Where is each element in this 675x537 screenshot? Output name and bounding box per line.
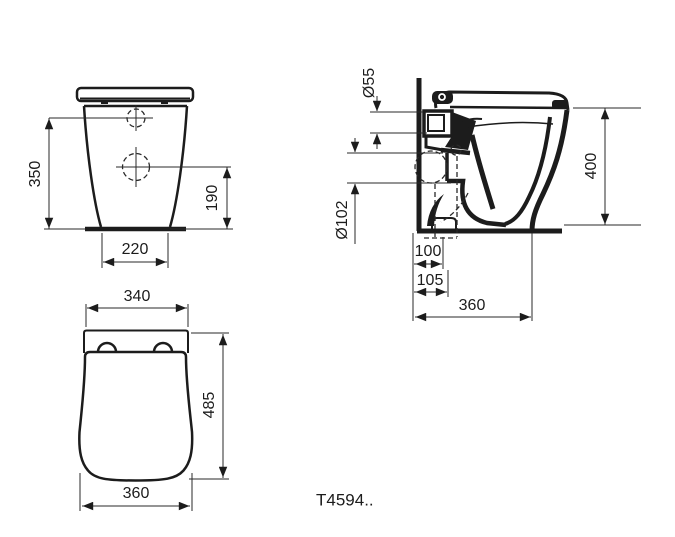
seat-plan-outline xyxy=(79,331,192,481)
base-width-label: 220 xyxy=(122,241,149,258)
outlet-offset-100-label: 100 xyxy=(415,243,442,260)
seat-outline xyxy=(79,352,192,481)
base-width-dimension: 220 xyxy=(102,233,168,268)
lower-hole-height-label: 190 xyxy=(204,185,221,212)
hinge-nub-left xyxy=(101,100,108,104)
drawing-svg: 350 190 220 xyxy=(0,0,675,537)
hinge-block xyxy=(432,91,453,104)
bowl-inner-front xyxy=(505,117,550,224)
hinge-right xyxy=(154,343,172,352)
front-height-label: 350 xyxy=(27,161,44,188)
back-width-dimension: 340 xyxy=(86,288,188,327)
hinge-left xyxy=(98,343,116,352)
back-step xyxy=(426,136,443,150)
water-line xyxy=(468,123,553,127)
front-width-label: 360 xyxy=(123,485,150,502)
inlet-diameter-label: Ø55 xyxy=(361,68,378,98)
hidden-outlet-lines xyxy=(415,145,468,238)
outlet-diameter-label: Ø102 xyxy=(334,200,351,239)
flush-rim-section xyxy=(445,112,476,150)
lower-hole-height-dimension: 190 xyxy=(116,167,233,229)
length-label: 485 xyxy=(201,392,218,419)
outlet-diameter-dimension: Ø102 xyxy=(334,138,451,244)
outlet-offset-105-label: 105 xyxy=(417,272,444,289)
lid-bumper xyxy=(552,100,567,109)
wc-side-outline xyxy=(424,91,568,231)
seat-lid-underside xyxy=(450,107,567,108)
bowl-inner-back xyxy=(472,135,493,209)
inner-ledge xyxy=(441,150,470,153)
front-width-dimension: 360 xyxy=(80,473,192,511)
side-view: Ø55 Ø102 400 100 xyxy=(334,68,641,321)
height-dimension: 400 xyxy=(564,108,641,225)
model-number: T4594.. xyxy=(316,490,374,509)
sump-outline xyxy=(447,181,506,225)
top-view: 340 485 360 xyxy=(79,288,229,511)
back-width-label: 340 xyxy=(124,288,151,305)
front-view: 350 190 220 xyxy=(27,88,233,268)
outlet-offset-105-dimension: 105 xyxy=(414,270,448,297)
fixing-holes xyxy=(123,105,150,187)
depth-label: 360 xyxy=(459,297,486,314)
height-label: 400 xyxy=(583,153,600,180)
body-left-side xyxy=(84,106,101,227)
inlet-spigot-bore xyxy=(428,115,444,131)
hinge-nub-right xyxy=(161,100,168,104)
technical-drawing-canvas: 350 190 220 xyxy=(0,0,675,537)
length-dimension: 485 xyxy=(189,333,229,479)
